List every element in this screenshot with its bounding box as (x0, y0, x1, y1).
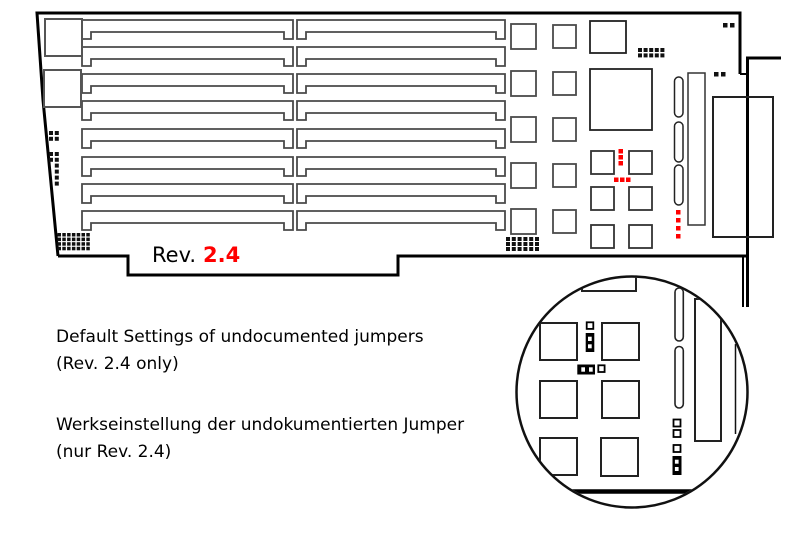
pin-grid (649, 53, 653, 57)
jumper-pins (714, 72, 719, 77)
pin-grid (535, 237, 539, 241)
jumper-pin-hole (588, 337, 592, 341)
oval-connector (675, 77, 684, 117)
undocumented-jumper-red (676, 218, 681, 223)
caption-english: Default Settings of undocumented jumpers… (56, 324, 424, 378)
jumper-pins (55, 131, 59, 135)
pin-grid (518, 247, 522, 251)
pin-grid (655, 53, 659, 57)
magnifier-detail (517, 266, 748, 508)
pin-grid (58, 233, 62, 237)
pin-grid (523, 242, 527, 246)
memory-socket (82, 20, 293, 39)
jumper-pin-hole (675, 467, 679, 471)
jumper-pins (55, 152, 59, 156)
undocumented-jumper-red (619, 161, 624, 166)
pin-grid (523, 247, 527, 251)
jumper-cap (673, 456, 682, 475)
chip (511, 117, 536, 142)
jumper-pins (49, 158, 53, 162)
chip (591, 187, 614, 210)
chip (553, 25, 576, 48)
revision-number: 2.4 (203, 243, 240, 267)
pin-grid (77, 233, 81, 237)
oval-connector (675, 122, 684, 162)
chip (553, 210, 576, 233)
memory-socket (297, 101, 505, 120)
chip (591, 151, 614, 174)
undocumented-jumper-red (620, 178, 625, 183)
pin-grid (62, 233, 66, 237)
pin-grid (86, 238, 90, 242)
pin-grid (62, 242, 66, 246)
pin-grid (72, 242, 76, 246)
pin-grid (86, 242, 90, 246)
memory-socket (297, 47, 505, 66)
chip (629, 187, 652, 210)
pin-grid (62, 238, 66, 242)
caption-english-line1: Default Settings of undocumented jumpers (56, 324, 424, 351)
external-connector (713, 97, 773, 237)
pin-grid (512, 242, 516, 246)
undocumented-jumper-red (614, 178, 619, 183)
connector-rect (688, 73, 705, 225)
jumper-pins (721, 72, 726, 77)
pin-grid (67, 233, 71, 237)
pcb-diagram-page: Rev.2.4 (0, 0, 800, 533)
memory-socket (82, 211, 293, 230)
pin-grid (77, 238, 81, 242)
pin-grid (77, 242, 81, 246)
memory-socket (82, 101, 293, 120)
undocumented-jumper-red (619, 149, 624, 154)
pin-grid (86, 233, 90, 237)
caption-german-line1: Werkseinstellung der undokumentierten Ju… (56, 412, 464, 439)
pin-grid (529, 237, 533, 241)
pin-grid (72, 233, 76, 237)
jumper-pin-hole (675, 460, 679, 464)
oval-connector-array (675, 77, 684, 205)
undocumented-jumper-red (676, 226, 681, 231)
chip (629, 225, 652, 248)
jumper-pins (49, 131, 53, 135)
undocumented-jumper-red (626, 178, 631, 183)
caption-english-line2: (Rev. 2.4 only) (56, 351, 424, 378)
jumper-pins (723, 23, 728, 28)
pin-grid (660, 48, 664, 52)
pin-grid (58, 247, 62, 251)
pin-grid (512, 247, 516, 251)
revision-prefix: Rev. (152, 243, 196, 267)
pin-grid (523, 237, 527, 241)
pin-grid (638, 53, 642, 57)
jumper-pins (49, 152, 53, 156)
pin-grid (67, 247, 71, 251)
pin-grid (512, 237, 516, 241)
pin-grid (77, 247, 81, 251)
oval-connector (675, 165, 684, 205)
undocumented-jumper-red (676, 234, 681, 239)
pin-grid (72, 238, 76, 242)
chip (511, 163, 536, 188)
chip-array (44, 19, 773, 248)
square-component (44, 70, 81, 107)
pin-grid (649, 48, 653, 52)
memory-socket (297, 20, 505, 39)
pin-grid (58, 238, 62, 242)
pin-grid (638, 48, 642, 52)
memory-socket (297, 211, 505, 230)
board-outline (37, 13, 781, 307)
undocumented-jumper-red (619, 155, 624, 160)
jumper-pins (49, 137, 53, 141)
jumper-pins (55, 176, 59, 180)
jumper-pin-hole (581, 367, 585, 371)
board-edge-top-left (37, 13, 740, 256)
pin-grid (655, 48, 659, 52)
pin-grid (58, 242, 62, 246)
socket-array (82, 20, 505, 230)
pin-grid (82, 238, 86, 242)
pin-grid (82, 233, 86, 237)
jumper-pin-hole (588, 344, 592, 348)
undocumented-jumper-red (676, 210, 681, 215)
chip (553, 118, 576, 141)
memory-socket (297, 129, 505, 148)
memory-socket (297, 74, 505, 93)
pin-grid (535, 247, 539, 251)
memory-socket (82, 74, 293, 93)
chip (553, 72, 576, 95)
caption-german-line2: (nur Rev. 2.4) (56, 439, 464, 466)
pin-grid (506, 247, 510, 251)
jumper-pins (730, 23, 735, 28)
chip (511, 24, 536, 49)
chip (511, 209, 536, 234)
pin-grid (518, 242, 522, 246)
memory-socket (297, 157, 505, 176)
chip (553, 164, 576, 187)
chip-medium (590, 21, 626, 53)
jumper-pins (55, 182, 59, 186)
pin-grid (506, 237, 510, 241)
jumper-cap (586, 333, 595, 352)
jumper-pin-hole (589, 367, 593, 371)
memory-socket (82, 129, 293, 148)
pin-grid (72, 247, 76, 251)
pin-grid (644, 48, 648, 52)
pin-grid (529, 242, 533, 246)
pin-grid (535, 242, 539, 246)
chip (591, 225, 614, 248)
jumper-dot-clusters (49, 23, 735, 251)
pin-grid (82, 247, 86, 251)
chip-large (590, 69, 652, 130)
board-revision-label: Rev.2.4 (152, 243, 240, 267)
pin-grid (518, 237, 522, 241)
pin-grid (644, 53, 648, 57)
memory-socket (82, 157, 293, 176)
pin-grid (660, 53, 664, 57)
memory-socket (82, 47, 293, 66)
pin-grid (67, 238, 71, 242)
pin-grid (529, 247, 533, 251)
jumper-pins (55, 164, 59, 168)
memory-socket (82, 184, 293, 203)
pin-grid (67, 242, 71, 246)
jumper-pins (55, 158, 59, 162)
caption-german: Werkseinstellung der undokumentierten Ju… (56, 412, 464, 466)
memory-socket (297, 184, 505, 203)
chip (511, 71, 536, 96)
pin-grid (506, 242, 510, 246)
chip (629, 151, 652, 174)
square-component (45, 19, 82, 56)
jumper-pins (55, 137, 59, 141)
pin-grid (86, 247, 90, 251)
jumper-pins (55, 170, 59, 174)
pin-grid (82, 242, 86, 246)
pin-grid (62, 247, 66, 251)
